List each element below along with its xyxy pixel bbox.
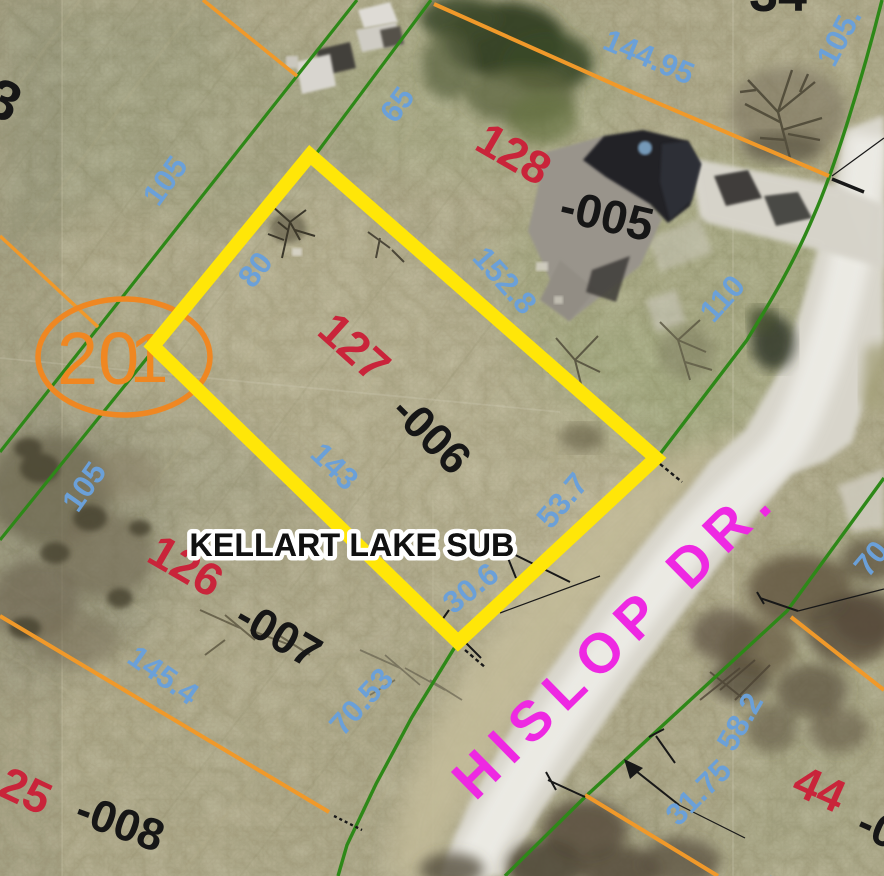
svg-text:34: 34 [749,0,807,23]
svg-text:20: 20 [57,317,139,400]
svg-text:KELLART LAKE SUB: KELLART LAKE SUB [190,527,515,563]
